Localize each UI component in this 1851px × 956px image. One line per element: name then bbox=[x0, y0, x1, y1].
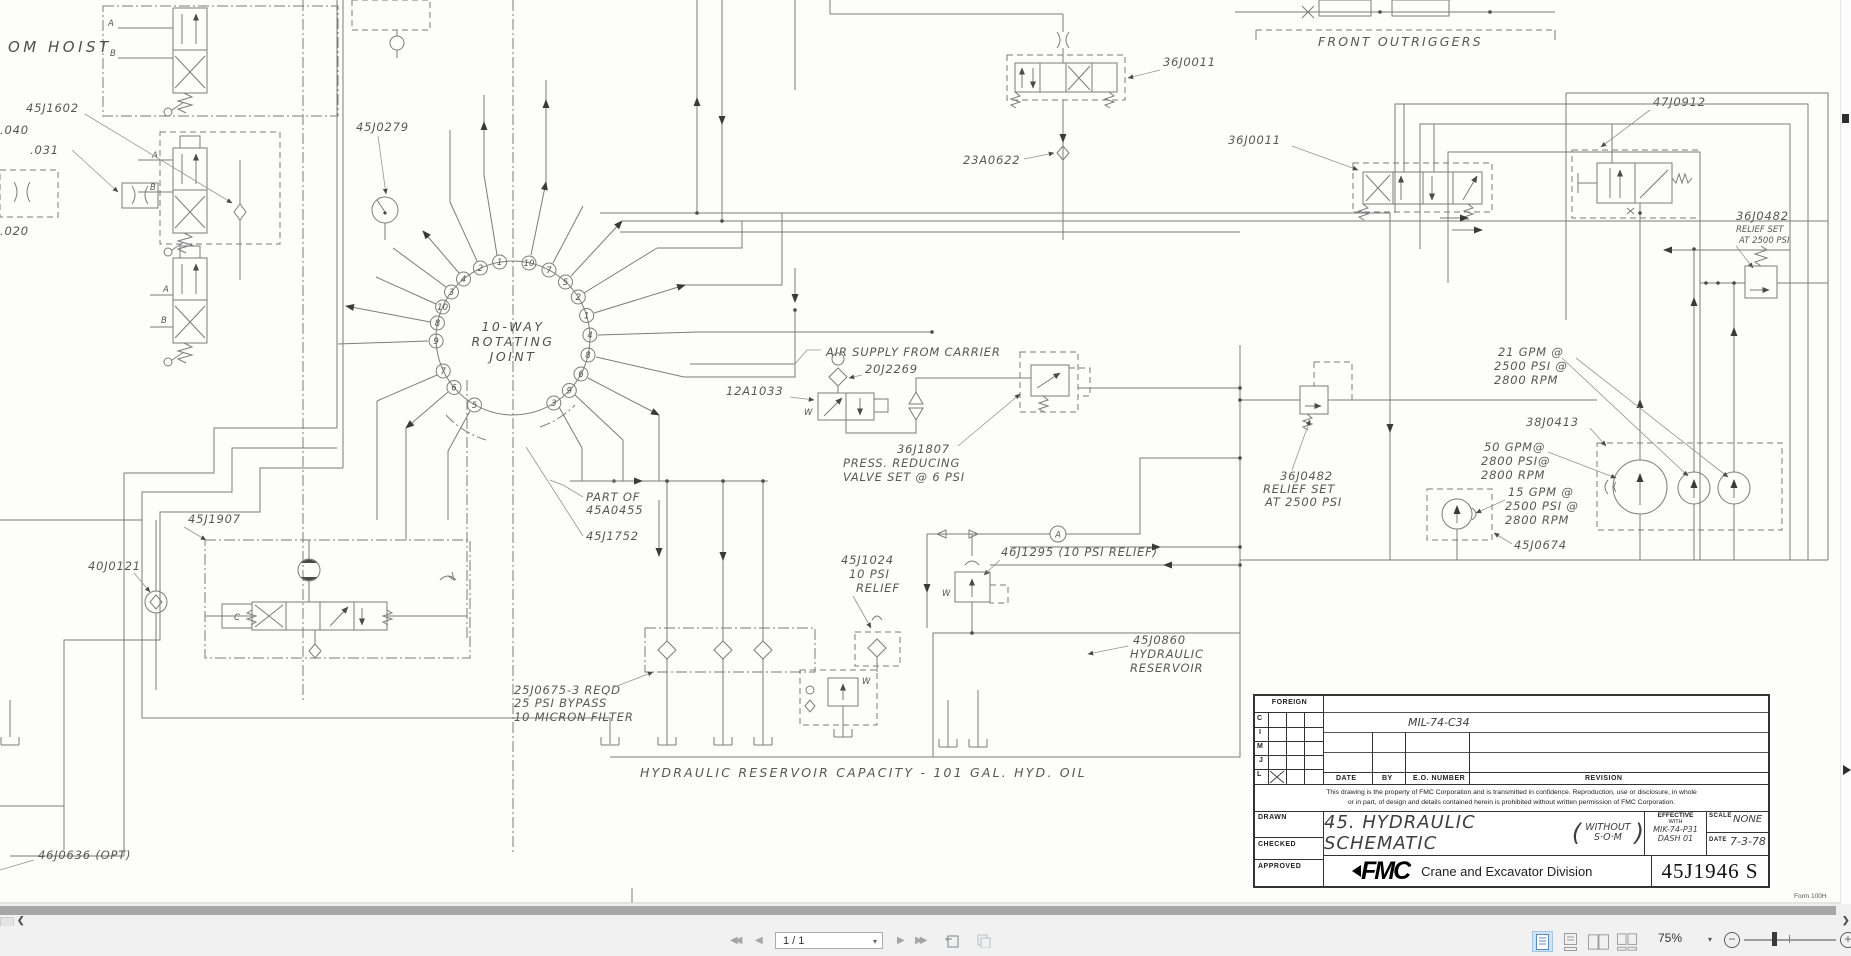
joint-text-3: JOINT bbox=[487, 349, 537, 364]
page-number-input[interactable]: 1 / 1 ▾ bbox=[775, 932, 883, 949]
joint-port: 2 bbox=[478, 264, 483, 274]
effective-value-1: MIK-74-P31 bbox=[1645, 825, 1706, 834]
page-dropdown-caret-icon[interactable]: ▾ bbox=[873, 933, 877, 950]
label-relief-r3: AT 2500 PSI bbox=[1738, 236, 1790, 246]
eo-col-label: E.O. NUMBER bbox=[1413, 775, 1465, 782]
left-restrictors bbox=[0, 160, 246, 280]
drawn-label: DRAWN bbox=[1258, 814, 1287, 821]
reservoir-group: W 45J0860 HYDRAULIC RESERVOIR 25J0675-3 … bbox=[514, 628, 1240, 780]
rotating-joint: 10-WAY ROTATING JOINT 1 2 4 3 10 8 9 7 6… bbox=[338, 175, 698, 451]
two-page-view-button[interactable] bbox=[1588, 931, 1609, 952]
label-45j0674: 45J0674 bbox=[1514, 538, 1567, 552]
row-j: J bbox=[1259, 757, 1263, 764]
joint-port: 4 bbox=[461, 275, 466, 285]
joint-port: 8 bbox=[585, 351, 591, 361]
label-boom-hoist: OM HOIST bbox=[8, 38, 112, 56]
drawing-number: 45J1946 S bbox=[1652, 856, 1768, 886]
effective-value-2: DASH 01 bbox=[1645, 834, 1706, 843]
relief-36j0482-right: 36J0482 RELIEF SET AT 2500 PSI bbox=[1700, 209, 1828, 298]
date-col-label: DATE bbox=[1336, 775, 1357, 782]
label-relief-r1: 36J0482 bbox=[1736, 209, 1789, 223]
zoom-level-value[interactable]: 75% bbox=[1658, 931, 1682, 945]
last-page-button[interactable]: ▶▶ bbox=[915, 933, 924, 949]
label-031: .031 bbox=[30, 143, 59, 157]
label-40j0121: 40J0121 bbox=[88, 559, 141, 573]
connector-a: A bbox=[1054, 531, 1061, 541]
label-45j1024-1: 45J1024 bbox=[841, 553, 894, 567]
label-partof-1: PART OF bbox=[586, 490, 640, 504]
label-50gpm-1: 50 GPM@ bbox=[1484, 440, 1545, 454]
vertical-scrollbar-thumb[interactable] bbox=[1842, 114, 1849, 123]
joint-text-1: 10-WAY bbox=[481, 319, 544, 334]
bus-lines-left bbox=[0, 0, 610, 856]
port-label-b: B bbox=[161, 316, 167, 326]
label-45j0279: 45J0279 bbox=[356, 120, 409, 134]
pressure-gauge bbox=[372, 197, 398, 240]
valve-45j1907-group: 45J1907 C 40J0121 bbox=[88, 512, 470, 690]
previous-view-icon[interactable] bbox=[944, 933, 961, 948]
approved-label: APPROVED bbox=[1258, 863, 1301, 870]
part-of-labels: PART OF 45A0455 45J1752 bbox=[526, 447, 723, 560]
valve-47j0912: 47J0912 bbox=[1572, 95, 1706, 249]
zoom-out-button[interactable]: − bbox=[1724, 932, 1740, 948]
label-15gpm-1: 15 GPM @ bbox=[1508, 485, 1574, 499]
joint-port: 7 bbox=[546, 266, 552, 276]
label-20j2269: 20J2269 bbox=[865, 362, 918, 376]
front-outriggers-group: FRONT OUTRIGGERS bbox=[1235, 0, 1555, 49]
division-name: Crane and Excavator Division bbox=[1421, 864, 1592, 879]
joint-port: 9 bbox=[433, 337, 438, 347]
label-c-port: C bbox=[234, 613, 240, 623]
zoom-in-button[interactable]: + bbox=[1840, 932, 1851, 948]
title-paren-2: S·O·M bbox=[1585, 833, 1630, 843]
joint-port: 10 bbox=[524, 259, 535, 269]
label-45j1907: 45J1907 bbox=[188, 512, 241, 526]
zoom-dropdown-caret-icon[interactable]: ▾ bbox=[1708, 935, 1712, 944]
scroll-right-icon[interactable]: ❯ bbox=[1842, 915, 1850, 925]
zoom-slider-track[interactable] bbox=[1744, 939, 1836, 941]
row-l: L bbox=[1257, 771, 1262, 778]
label-47j0912: 47J0912 bbox=[1653, 95, 1706, 109]
joint-port: 3 bbox=[551, 399, 556, 409]
paren-open: ( bbox=[1572, 819, 1581, 847]
notice-line-2: or in part, of design and details contai… bbox=[1265, 798, 1758, 808]
x-mark bbox=[1269, 770, 1285, 784]
row-m: M bbox=[1257, 743, 1263, 750]
valve-36j0011-mid: 36J0011 bbox=[1228, 104, 1492, 230]
joint-port: 5 bbox=[472, 401, 477, 411]
label-filter-1: 25J0675-3 REQD bbox=[514, 683, 621, 697]
label-relief-m1: 36J0482 bbox=[1280, 469, 1333, 483]
port-label-b: B bbox=[150, 183, 156, 193]
paren-close: ) bbox=[1635, 819, 1644, 847]
label-relief-m3: AT 2500 PSI bbox=[1264, 495, 1342, 509]
scale-value: NONE bbox=[1733, 814, 1762, 825]
notice-line-1: This drawing is the property of FMC Corp… bbox=[1265, 788, 1758, 798]
label-air-supply: AIR SUPPLY FROM CARRIER bbox=[825, 345, 1001, 359]
previous-page-button[interactable]: ◀ bbox=[755, 933, 763, 949]
date-label: DATE bbox=[1709, 837, 1727, 843]
label-36j0011-top: 36J0011 bbox=[1163, 55, 1216, 69]
label-relief-m2: RELIEF SET bbox=[1263, 482, 1335, 496]
pdf-viewer-window: A B A B A B OM HOIST 45J1602 .040 .031 .… bbox=[0, 0, 1851, 956]
zoom-slider-thumb[interactable] bbox=[1772, 932, 1777, 946]
fmc-logo-mark bbox=[1352, 865, 1361, 877]
by-col-label: BY bbox=[1382, 775, 1393, 782]
joint-port: 6 bbox=[578, 370, 584, 380]
date-value: 7-3-78 bbox=[1730, 835, 1766, 848]
horizontal-scrollbar[interactable]: ❮ ❯ bbox=[0, 904, 1851, 926]
scale-label: SCALE bbox=[1709, 813, 1732, 819]
label-45j0860-2: HYDRAULIC bbox=[1130, 647, 1204, 661]
next-view-icon[interactable] bbox=[975, 933, 992, 948]
label-45j1752: 45J1752 bbox=[586, 529, 639, 543]
vertical-scrollbar[interactable] bbox=[1840, 0, 1851, 904]
bus-lines-main bbox=[377, 0, 1828, 757]
label-w-port: W bbox=[862, 677, 871, 687]
drawing-title: 45. HYDRAULIC SCHEMATIC bbox=[1324, 812, 1568, 854]
form-number: Form 100H bbox=[1794, 893, 1827, 900]
effective-label: EFFECTIVE bbox=[1645, 812, 1706, 819]
fmc-logo: FMC bbox=[1361, 857, 1409, 886]
joint-port: 7 bbox=[440, 367, 446, 377]
label-relief-r2: RELIEF SET bbox=[1736, 225, 1784, 235]
label-45j0860-1: 45J0860 bbox=[1133, 633, 1186, 647]
label-reservoir-capacity: HYDRAULIC RESERVOIR CAPACITY - 101 GAL. … bbox=[640, 765, 1087, 780]
label-w-port: W bbox=[942, 589, 951, 599]
joint-text-2: ROTATING bbox=[471, 334, 554, 349]
label-50gpm-2: 2800 PSI@ bbox=[1481, 454, 1550, 468]
label-21gpm-3: 2800 RPM bbox=[1494, 373, 1558, 387]
label-040: .040 bbox=[0, 123, 29, 137]
label-21gpm-2: 2500 PSI @ bbox=[1494, 359, 1568, 373]
checked-label: CHECKED bbox=[1258, 841, 1296, 848]
air-supply-group: AIR SUPPLY FROM CARRIER 20J2269 12A1033 … bbox=[690, 345, 1242, 484]
label-w-port: W bbox=[804, 408, 813, 418]
label-45j1602: 45J1602 bbox=[26, 101, 79, 115]
label-15gpm-3: 2800 RPM bbox=[1505, 513, 1569, 527]
label-46j0636: 46J0636 (OPT) bbox=[38, 848, 131, 862]
label-23a0622: 23A0622 bbox=[963, 153, 1020, 167]
eo-number-value: MIL-74-C34 bbox=[1408, 716, 1470, 729]
joint-port: 8 bbox=[435, 319, 441, 329]
drawing-page: A B A B A B OM HOIST 45J1602 .040 .031 .… bbox=[0, 0, 1851, 905]
two-page-continuous-view-button[interactable] bbox=[1617, 931, 1638, 952]
label-45j1024-3: RELIEF bbox=[856, 581, 900, 595]
joint-port: 1 bbox=[497, 258, 502, 268]
label-filter-3: 10 MICRON FILTER bbox=[514, 710, 634, 724]
label-15gpm-2: 2500 PSI @ bbox=[1505, 499, 1579, 513]
joint-port: 10 bbox=[437, 303, 448, 313]
first-page-button[interactable]: ◀◀ bbox=[730, 933, 739, 949]
row-i: I bbox=[1259, 729, 1261, 736]
label-36j1807-3: VALVE SET @ 6 PSI bbox=[843, 470, 965, 484]
page-number-value: 1 / 1 bbox=[783, 935, 804, 947]
joint-port: 4 bbox=[587, 331, 592, 341]
joint-port: 1 bbox=[584, 312, 589, 322]
joint-port: 2 bbox=[576, 293, 581, 303]
label-partof-2: 45A0455 bbox=[586, 503, 643, 517]
row-c: C bbox=[1257, 715, 1263, 722]
label-21gpm-1: 21 GPM @ bbox=[1498, 345, 1564, 359]
continuous-view-button[interactable] bbox=[1560, 931, 1581, 952]
title-block: FOREIGN C I M J L DATE BY E.O. NUMBER RE… bbox=[1253, 694, 1770, 888]
joint-port: 5 bbox=[563, 278, 568, 288]
valve-36j0011-top: 36J0011 23A0622 bbox=[963, 14, 1216, 240]
label-45j0860-3: RESERVOIR bbox=[1130, 661, 1203, 675]
label-filter-2: 25 PSI BYPASS bbox=[514, 696, 607, 710]
label-36j0011-mid: 36J0011 bbox=[1228, 133, 1281, 147]
label-36j1807-2: PRESS. REDUCING bbox=[843, 456, 960, 470]
joint-port: 6 bbox=[451, 384, 457, 394]
label-36j1807: 36J1807 bbox=[897, 442, 950, 456]
zoom-slider-tick bbox=[1789, 935, 1790, 943]
revision-col-label: REVISION bbox=[1585, 775, 1622, 782]
single-page-view-button[interactable] bbox=[1532, 931, 1553, 952]
port-label-a: A bbox=[162, 285, 169, 295]
label-front-outriggers: FRONT OUTRIGGERS bbox=[1318, 34, 1483, 49]
label-12a1033: 12A1033 bbox=[726, 384, 783, 398]
horizontal-scrollbar-thumb[interactable] bbox=[0, 906, 1836, 915]
page-edge-arrow-icon bbox=[1843, 765, 1851, 775]
pump-group: 21 GPM @ 2500 PSI @ 2800 RPM 38J0413 50 … bbox=[1427, 211, 1782, 560]
label-50gpm-3: 2800 RPM bbox=[1481, 468, 1545, 482]
label-38j0413: 38J0413 bbox=[1526, 415, 1579, 429]
label-45j1024-2: 10 PSI bbox=[849, 567, 890, 581]
label-020: .020 bbox=[0, 224, 29, 238]
joint-port: 9 bbox=[567, 387, 572, 397]
bottom-toolbar: ◀◀ ◀ 1 / 1 ▾ ▶ ▶▶ 75% ▾ − + bbox=[0, 926, 1851, 956]
next-page-button[interactable]: ▶ bbox=[897, 933, 905, 949]
joint-port: 3 bbox=[449, 288, 454, 298]
port-label-a: A bbox=[107, 19, 114, 29]
scroll-left-icon[interactable]: ❮ bbox=[17, 915, 25, 925]
